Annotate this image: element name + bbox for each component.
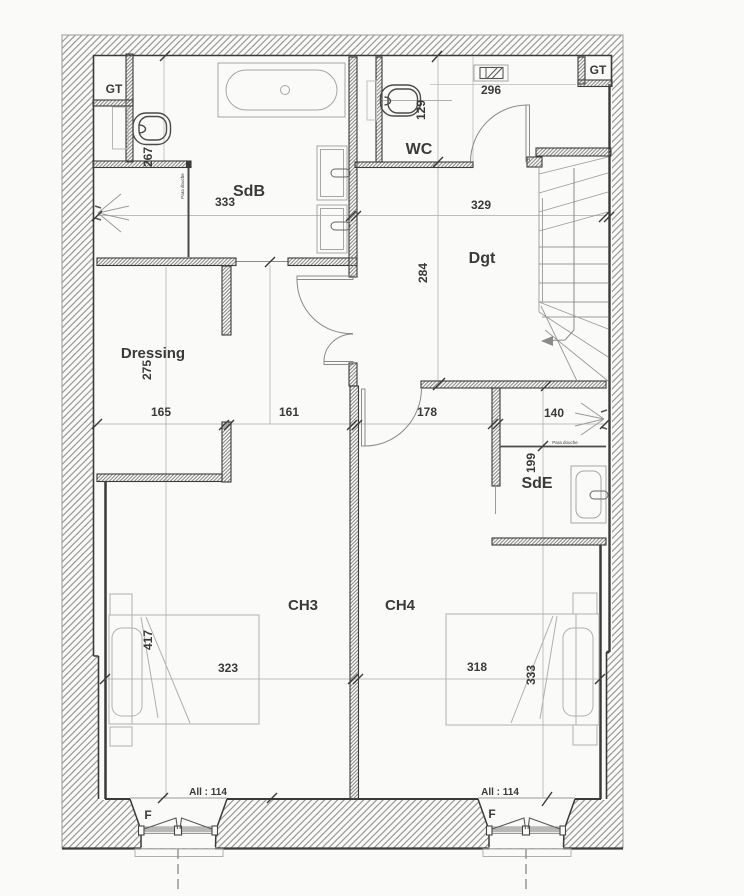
svg-text:CH3: CH3 [288, 597, 318, 614]
svg-text:WC: WC [406, 141, 433, 158]
svg-text:Dressing: Dressing [121, 345, 185, 362]
svg-text:GT: GT [106, 82, 123, 96]
svg-text:323: 323 [218, 661, 238, 675]
svg-text:296: 296 [481, 83, 501, 97]
svg-text:329: 329 [471, 198, 491, 212]
svg-text:140: 140 [544, 406, 564, 420]
svg-text:199: 199 [524, 453, 538, 473]
svg-text:284: 284 [416, 263, 430, 283]
svg-text:178: 178 [417, 405, 437, 419]
svg-text:F: F [144, 808, 151, 822]
svg-text:All : 114: All : 114 [189, 787, 227, 798]
svg-text:All : 114: All : 114 [481, 787, 519, 798]
svg-text:129: 129 [414, 100, 428, 120]
svg-text:GT: GT [590, 63, 607, 77]
svg-text:417: 417 [141, 630, 155, 650]
svg-text:275: 275 [140, 360, 154, 380]
svg-text:Para douche: Para douche [180, 173, 185, 199]
svg-text:F: F [488, 807, 495, 821]
svg-text:CH4: CH4 [385, 597, 416, 614]
svg-text:318: 318 [467, 660, 487, 674]
svg-text:SdE: SdE [521, 475, 552, 492]
svg-text:333: 333 [215, 195, 235, 209]
svg-text:SdB: SdB [233, 183, 265, 200]
svg-text:165: 165 [151, 405, 171, 419]
svg-text:Para douche: Para douche [552, 440, 578, 445]
svg-text:Dgt: Dgt [469, 250, 496, 267]
svg-text:267: 267 [141, 147, 155, 167]
svg-text:161: 161 [279, 405, 299, 419]
svg-text:333: 333 [524, 665, 538, 685]
